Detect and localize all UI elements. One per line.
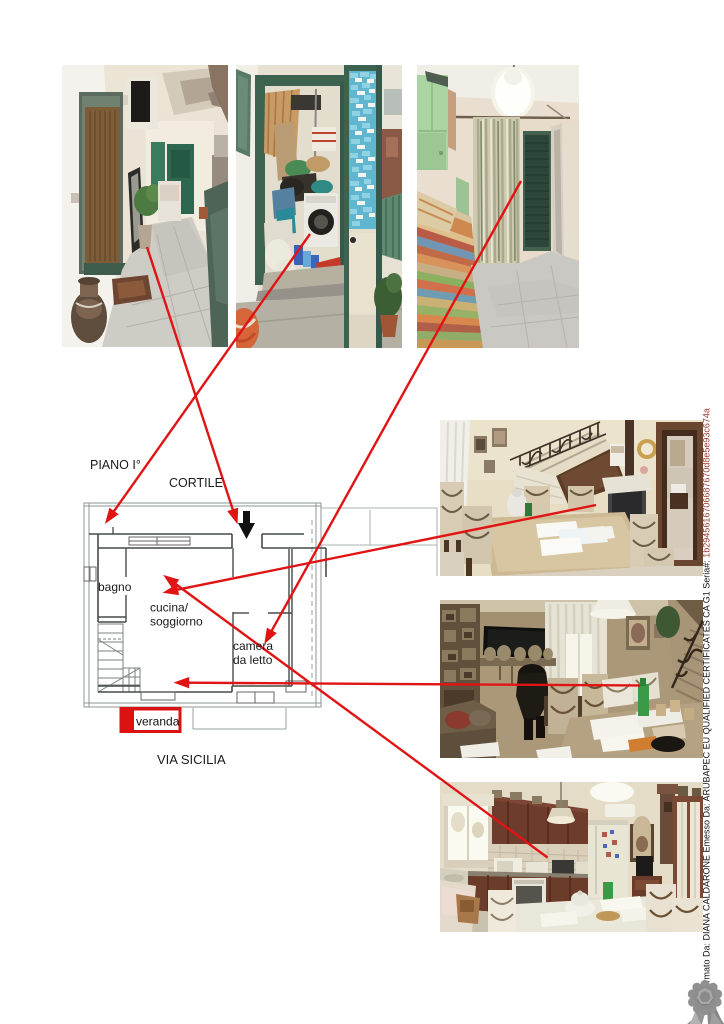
svg-text:bagno: bagno — [98, 580, 132, 594]
svg-text:cucina/: cucina/ — [150, 601, 189, 615]
svg-text:PIANO I°: PIANO I° — [90, 458, 141, 472]
svg-text:soggiorno: soggiorno — [150, 615, 203, 629]
svg-text:CORTILE: CORTILE — [169, 476, 223, 490]
svg-text:VIA SICILIA: VIA SICILIA — [157, 752, 226, 767]
svg-text:veranda: veranda — [136, 715, 180, 729]
svg-text:camera: camera — [233, 639, 273, 653]
svg-text:Firmato Da: DIANA CALDARONE Em: Firmato Da: DIANA CALDARONE Emesso Da: A… — [702, 408, 712, 990]
svg-text:da letto: da letto — [233, 653, 273, 667]
